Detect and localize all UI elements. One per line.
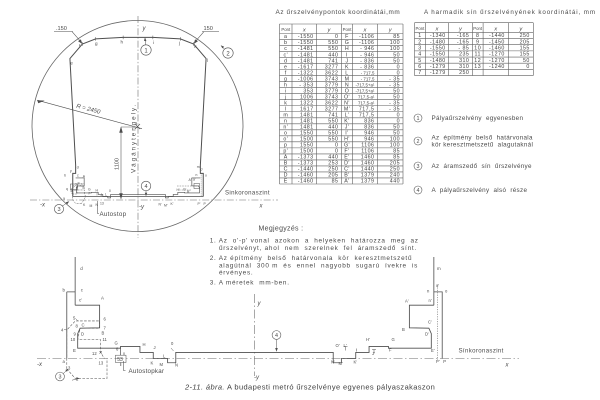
svg-text:q: q — [66, 187, 68, 191]
svg-text:10: 10 — [474, 46, 481, 52]
svg-text:o: o — [445, 289, 448, 294]
svg-text:-1550: -1550 — [430, 52, 446, 58]
svg-text:J: J — [101, 193, 103, 197]
svg-text:A': A' — [189, 178, 192, 182]
svg-text:N: N — [96, 203, 99, 207]
svg-text:M': M' — [339, 361, 343, 366]
svg-text:b: b — [63, 288, 66, 293]
svg-text:O': O' — [336, 343, 340, 348]
svg-text:A': A' — [405, 299, 409, 304]
svg-text:o': o' — [436, 283, 439, 288]
svg-text:85: 85 — [332, 179, 339, 185]
svg-text:-1270: -1270 — [489, 52, 505, 58]
svg-text:9: 9 — [476, 39, 479, 45]
svg-text:Sínkoronaszint: Sínkoronaszint — [459, 348, 504, 355]
svg-text:3: 3 — [57, 207, 60, 213]
svg-text:n': n' — [429, 298, 432, 303]
svg-text:- 85: - 85 — [458, 46, 469, 52]
svg-text:N: N — [175, 363, 178, 368]
svg-text:A harmadik sín űrszelvényének: A harmadik sín űrszelvényének koordinátá… — [424, 9, 596, 16]
svg-text:250: 250 — [459, 70, 469, 76]
svg-text:-1279: -1279 — [430, 70, 446, 76]
svg-text:d: d — [80, 266, 83, 271]
svg-text:P': P' — [436, 359, 440, 364]
svg-text:Sinkoronaszint: Sinkoronaszint — [225, 190, 270, 197]
svg-text:C': C' — [428, 320, 432, 325]
svg-text:h: h — [121, 40, 124, 45]
svg-text:- 717,5: - 717,5 — [361, 70, 375, 75]
svg-text:x: x — [302, 28, 307, 34]
svg-text:2: 2 — [417, 139, 420, 145]
svg-text:alagútnál 300 m és ennel n: alagútnál 300 m és ennel nagyobb sugarú … — [219, 262, 418, 269]
svg-text:érvényes.: érvényes. — [219, 270, 253, 277]
svg-text:o: o — [205, 174, 207, 178]
svg-text:-1240: -1240 — [489, 64, 505, 70]
svg-text:4: 4 — [61, 328, 64, 333]
svg-text:y: y — [70, 169, 72, 173]
svg-text:-1270: -1270 — [489, 58, 505, 64]
svg-text:Az áramszedő sín űrszelvény: Az áramszedő sín űrszelvénye — [432, 163, 532, 170]
svg-text:-1450: -1450 — [489, 39, 505, 45]
svg-text:K: K — [151, 361, 154, 366]
svg-text:n: n — [196, 173, 198, 177]
svg-text:H: H — [143, 342, 146, 347]
svg-text:717,5-a¹: 717,5-a¹ — [358, 94, 375, 99]
svg-text:m: m — [197, 165, 200, 169]
svg-text:A': A' — [344, 179, 349, 185]
svg-text:1: 1 — [418, 33, 421, 39]
svg-text:j: j — [178, 41, 180, 46]
svg-text:y: y — [257, 301, 262, 307]
svg-text:P': P' — [198, 202, 201, 206]
svg-text:a': a' — [193, 178, 196, 182]
svg-text:13: 13 — [474, 64, 481, 70]
svg-text:-1440: -1440 — [489, 33, 505, 39]
svg-text:F: F — [389, 348, 392, 353]
svg-text:b: b — [64, 173, 66, 177]
svg-text:0: 0 — [171, 341, 174, 346]
svg-text:y: y — [458, 26, 463, 32]
svg-text:1. Az o'-p' vonal azokon a: 1. Az o'-p' vonal azokon a helyeken hatá… — [210, 238, 419, 245]
svg-text:Autostopkar: Autostopkar — [129, 368, 165, 375]
svg-text:x: x — [435, 26, 440, 32]
svg-text:x: x — [363, 28, 368, 34]
svg-text:a: a — [63, 197, 65, 201]
svg-text:7: 7 — [418, 70, 421, 76]
svg-text:g: g — [95, 41, 98, 46]
svg-text:-x: -x — [37, 362, 43, 368]
svg-text:x: x — [505, 363, 510, 369]
svg-text:2: 2 — [418, 39, 421, 45]
svg-text:Az építmény belső határvona: Az építmény belső határvonala — [432, 135, 534, 142]
svg-text:B: B — [83, 186, 86, 190]
svg-text:L: L — [163, 354, 166, 359]
svg-text:13: 13 — [99, 361, 104, 366]
svg-text:-y: -y — [139, 205, 145, 211]
svg-text:H': H' — [366, 337, 370, 342]
svg-text:F: F — [89, 192, 91, 196]
svg-text:-1340: -1340 — [430, 33, 446, 39]
svg-text:2: 2 — [226, 51, 230, 57]
svg-text:B': B' — [187, 190, 190, 194]
svg-text:Pont: Pont — [343, 27, 353, 32]
svg-text:kör keresztmetszetű alagutakn: kör keresztmetszetű alagutaknál — [432, 142, 534, 149]
svg-text:5: 5 — [73, 316, 76, 321]
svg-text:G: G — [392, 337, 395, 342]
svg-text:11: 11 — [474, 52, 480, 58]
svg-text:-165: -165 — [457, 33, 469, 39]
svg-text:8: 8 — [476, 33, 479, 39]
svg-text:310: 310 — [459, 64, 469, 70]
svg-text:y: y — [518, 26, 523, 32]
svg-text:- 717,5: - 717,5 — [361, 76, 375, 81]
svg-text:-1480: -1480 — [430, 39, 446, 45]
svg-text:a: a — [63, 359, 66, 364]
svg-text:1379: 1379 — [361, 179, 375, 185]
svg-text:235: 235 — [459, 52, 469, 58]
svg-text:Pont: Pont — [281, 27, 291, 32]
svg-text:K': K' — [354, 360, 358, 365]
svg-text:J': J' — [372, 351, 375, 356]
svg-text:250: 250 — [520, 33, 530, 39]
svg-text:P: P — [443, 359, 446, 364]
svg-text:C: C — [82, 323, 85, 328]
svg-text:-717,5+a¹: -717,5+a¹ — [355, 82, 374, 87]
svg-text:N': N' — [159, 203, 162, 207]
svg-text:-1460: -1460 — [489, 46, 505, 52]
svg-text:13: 13 — [100, 202, 104, 206]
svg-text:6: 6 — [116, 347, 119, 352]
svg-text:M': M' — [164, 204, 168, 208]
svg-text:4: 4 — [417, 188, 420, 194]
svg-text:o': o' — [201, 168, 204, 172]
svg-text:K': K' — [171, 202, 174, 206]
svg-text:x: x — [493, 26, 498, 32]
svg-text:M: M — [160, 362, 164, 367]
svg-text:Pályaűrszelvény egyenesben: Pályaűrszelvény egyenesben — [432, 115, 524, 122]
svg-text:0: 0 — [526, 64, 529, 70]
svg-text:1100: 1100 — [115, 158, 121, 170]
svg-text:3. A méretek mm-ben.: 3. A méretek mm-ben. — [210, 280, 290, 287]
svg-text:y: y — [142, 26, 147, 32]
svg-text:-1550: -1550 — [430, 46, 446, 52]
svg-text:L: L — [105, 193, 107, 197]
svg-text:11: 11 — [103, 337, 108, 342]
svg-text:m: m — [437, 266, 441, 271]
svg-text:D': D' — [425, 332, 429, 337]
svg-text:155: 155 — [520, 46, 530, 52]
svg-text:9: 9 — [74, 332, 77, 337]
svg-text:4: 4 — [144, 184, 147, 190]
svg-text:Autostop: Autostop — [100, 211, 127, 218]
svg-text:D: D — [81, 332, 84, 337]
svg-text:A: A — [83, 174, 86, 178]
svg-text:d: d — [77, 166, 79, 170]
svg-text:3: 3 — [417, 164, 420, 170]
svg-text:-1279: -1279 — [430, 64, 446, 70]
svg-text:-717,5+a¹: -717,5+a¹ — [355, 88, 374, 93]
svg-text:53: 53 — [117, 357, 123, 363]
svg-text:717,5-a¹: 717,5-a¹ — [358, 100, 375, 105]
svg-text:J: J — [154, 345, 156, 350]
svg-text:1: 1 — [144, 48, 148, 54]
svg-text:E: E — [284, 179, 288, 185]
svg-text:N': N' — [331, 360, 335, 365]
svg-text:A: A — [101, 296, 104, 301]
svg-text:I: I — [97, 193, 98, 197]
svg-text:2. Az építmény belső határvo: 2. Az építmény belső határvonala kör ker… — [210, 255, 413, 262]
svg-text:440: 440 — [390, 179, 400, 185]
svg-text:L': L' — [344, 343, 347, 348]
svg-text:3: 3 — [59, 375, 62, 381]
svg-text:Pont: Pont — [415, 26, 425, 31]
svg-text:6: 6 — [418, 64, 421, 70]
svg-text:-x: -x — [40, 203, 46, 209]
svg-text:8: 8 — [76, 323, 79, 328]
svg-text:2-11. ábra. A budapesti metró: 2-11. ábra. A budapesti metró űrszelvény… — [184, 383, 435, 392]
svg-text:c': c' — [79, 298, 82, 303]
svg-text:0: 0 — [109, 189, 111, 193]
svg-text:Pont: Pont — [473, 26, 483, 31]
svg-text:Vágánytengely.: Vágánytengely. — [131, 103, 138, 173]
svg-text:-y: -y — [254, 375, 260, 381]
svg-text:4: 4 — [418, 52, 421, 58]
svg-text:x: x — [259, 204, 264, 210]
svg-text:.150: .150 — [56, 26, 67, 32]
svg-text:4: 4 — [275, 333, 278, 339]
svg-text:-1460: -1460 — [298, 179, 314, 185]
svg-text:12: 12 — [92, 351, 97, 356]
svg-text:-1480: -1480 — [430, 58, 446, 64]
svg-text:Megjegyzés :: Megjegyzés : — [259, 226, 304, 233]
svg-text:c: c — [77, 173, 79, 177]
svg-text:i: i — [153, 40, 154, 45]
svg-text:G': G' — [183, 188, 187, 192]
svg-text:c: c — [81, 288, 84, 293]
svg-text:B: B — [102, 331, 105, 336]
svg-text:6: 6 — [104, 317, 107, 322]
svg-text:A pályaűrszelvény alsó rész: A pályaűrszelvény alsó része — [432, 187, 528, 194]
svg-text:1: 1 — [417, 116, 420, 122]
svg-text:y: y — [327, 28, 332, 34]
svg-text:155: 155 — [520, 52, 530, 58]
svg-text:űrszelvényt, ahol nem szerel: űrszelvényt, ahol nem szerelnek fel áram… — [219, 245, 417, 252]
svg-text:3: 3 — [418, 46, 421, 52]
svg-text:E': E' — [431, 348, 435, 353]
svg-text:y: y — [388, 28, 393, 34]
svg-text:5: 5 — [418, 58, 421, 64]
svg-text:K: K — [83, 203, 86, 207]
svg-text:205: 205 — [520, 39, 530, 45]
svg-text:-165: -165 — [457, 39, 469, 45]
svg-text:12: 12 — [474, 58, 481, 64]
svg-text:e: e — [70, 61, 73, 66]
svg-text:310: 310 — [459, 58, 469, 64]
svg-text:E: E — [73, 348, 76, 353]
svg-text:l: l — [207, 58, 208, 63]
svg-text:n: n — [427, 289, 430, 294]
svg-text:150: 150 — [204, 26, 213, 32]
svg-text:P: P — [204, 202, 207, 206]
svg-text:M: M — [90, 204, 93, 208]
svg-text:10: 10 — [71, 337, 76, 342]
svg-text:3: 3 — [68, 366, 71, 371]
svg-text:50: 50 — [523, 58, 530, 64]
svg-text:G: G — [115, 341, 118, 346]
svg-text:Az űrszelvénypontok koordinátá: Az űrszelvénypontok koordinátái,mm — [276, 9, 401, 16]
svg-text:B: B — [402, 327, 405, 332]
